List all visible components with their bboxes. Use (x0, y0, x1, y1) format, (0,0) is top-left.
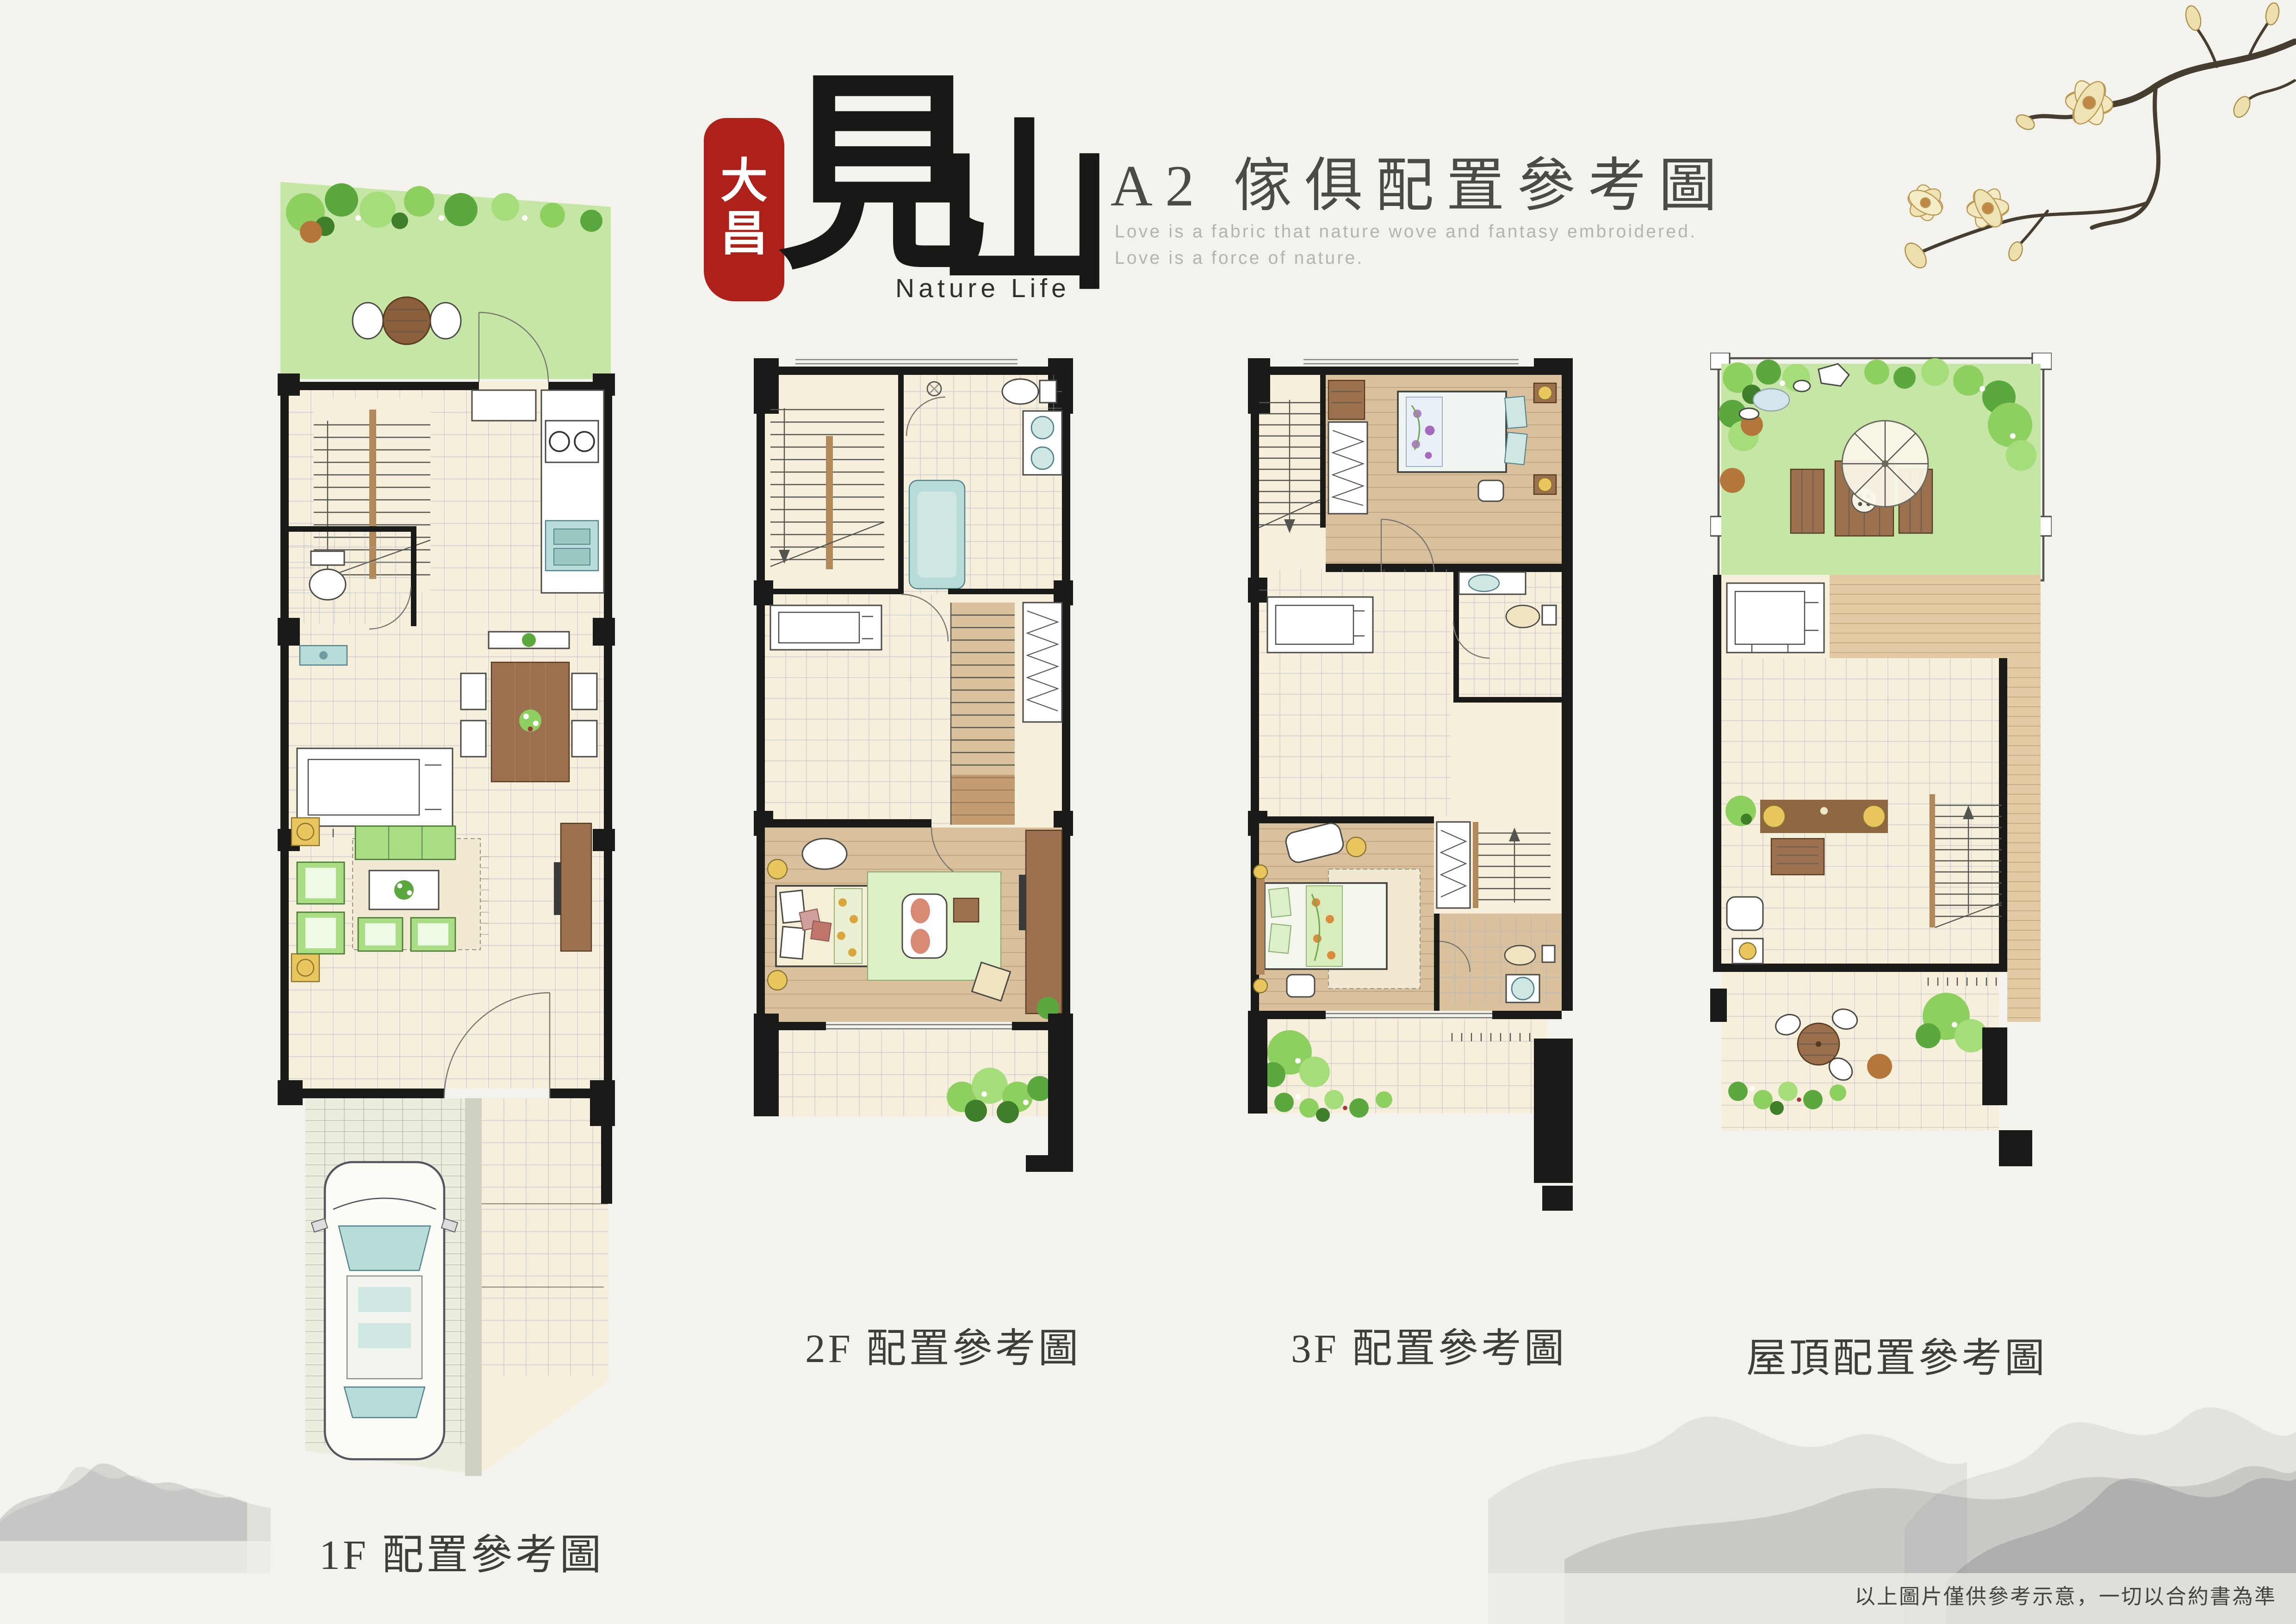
disclaimer-text: 以上圖片僅供參考示意，一切以合約書為準 (1846, 1581, 2277, 1611)
tv-cabinet (561, 823, 591, 951)
toilet-tank (1040, 380, 1056, 403)
closet (1437, 822, 1470, 908)
seal-char-1: 大 (720, 159, 768, 208)
powder-sink (300, 646, 347, 665)
floorplan-1f (278, 176, 615, 1481)
subtitle-line-1: Love is a fabric that nature wove and fa… (1115, 221, 1697, 242)
shelf (1328, 380, 1365, 419)
cabinet (472, 390, 536, 421)
magnolia-branch-illustration (1853, 0, 2296, 326)
2f-balcony (754, 1014, 1073, 1172)
chair (1727, 897, 1763, 930)
magnolia-flowers (1905, 77, 2115, 231)
driveway (305, 1098, 615, 1476)
car (311, 1162, 458, 1459)
label-1f: 1F 配置參考圖 (319, 1520, 604, 1581)
floorplan-2f (754, 358, 1073, 1291)
master-bedroom (765, 819, 1062, 1022)
piano (297, 748, 453, 837)
brand-tagline: Nature Life (895, 275, 1070, 305)
chair (1287, 975, 1315, 997)
subtitle-line-2: Love is a force of nature. (1115, 247, 1364, 268)
label-2f: 2F 配置參考圖 (805, 1316, 1081, 1375)
poster-stage: 大 昌 見 山 Nature Life A2 傢俱配置參考圖 Love is a… (0, 0, 2296, 1624)
floorplan-3f (1248, 358, 1573, 1291)
stool (1478, 480, 1503, 501)
3f-balcony (1248, 1011, 1573, 1211)
garden-table-set (353, 297, 461, 344)
loveseat (902, 894, 947, 958)
roof-terrace (1710, 972, 2032, 1166)
poster: { "page": {"background": "#f3f2ec", "wid… (0, 0, 2296, 1624)
toilet (1002, 379, 1038, 404)
magnolia-buds (1901, 2, 2281, 272)
brand-seal: 大 昌 (704, 118, 784, 301)
parasol (1842, 421, 1928, 507)
ottoman (802, 839, 847, 869)
toilet-tank (1542, 605, 1556, 625)
wardrobe (1026, 830, 1062, 1014)
floorplan-roof (1710, 353, 2052, 1213)
equipment-unit (1727, 583, 1824, 653)
roof-garden (1710, 353, 2052, 580)
ink-mountains-left (0, 1413, 271, 1573)
bed (1398, 392, 1527, 472)
stairs-to-3f (951, 603, 1015, 825)
toilet (1506, 605, 1539, 628)
tv-panel (1019, 875, 1026, 930)
piano (770, 605, 881, 650)
seal-char-2: 昌 (720, 211, 768, 261)
plant (1725, 796, 1756, 826)
front-garden (280, 182, 611, 382)
bed (1256, 877, 1387, 975)
kitchen (541, 390, 604, 593)
walk-in-closet (1023, 603, 1062, 722)
page-title: A2 傢俱配置參考圖 (1111, 139, 1730, 224)
side-table (954, 898, 979, 922)
piano (1267, 597, 1373, 653)
sofa-3-seat (355, 826, 455, 859)
